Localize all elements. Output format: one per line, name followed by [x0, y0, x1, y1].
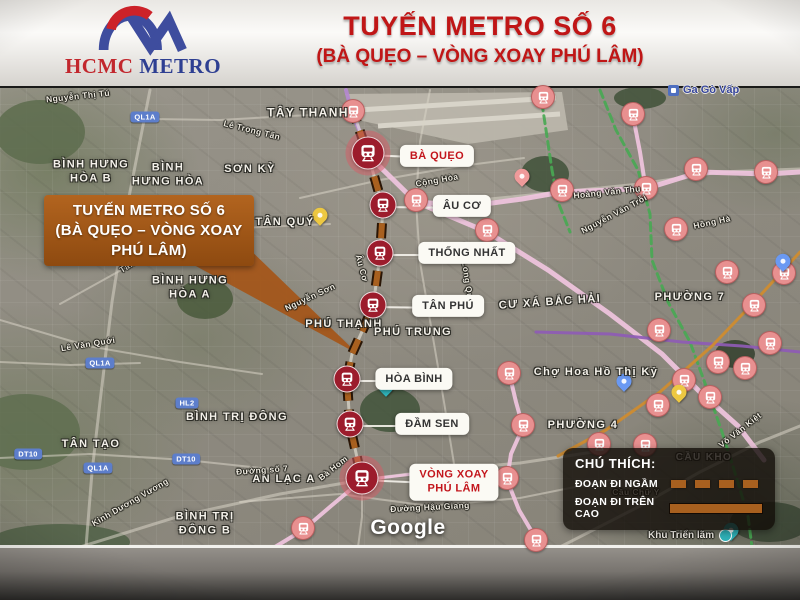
metro-station-icon [334, 366, 361, 393]
context-station-icon [698, 385, 722, 409]
context-station-icon [495, 466, 519, 490]
context-station-icon [706, 350, 730, 374]
context-station-icon [497, 361, 521, 385]
road-badge: DT10 [14, 449, 42, 460]
train-icon [358, 143, 379, 164]
legend-item-label: ĐOẠN ĐI TRÊN CAO [575, 496, 669, 520]
context-station-icon [404, 188, 428, 212]
train-icon [372, 245, 389, 262]
area-label: PHƯỜNG 7 [655, 291, 726, 305]
train-icon [502, 366, 517, 381]
train-icon [516, 418, 531, 433]
area-label: TÂN QUÝ [255, 216, 314, 230]
train-icon [365, 297, 382, 314]
context-station-icon [664, 217, 688, 241]
road-label: Võ Văn Kiệt [717, 410, 764, 450]
legend-box: CHÚ THÍCH: ĐOẠN ĐI NGẦMĐOẠN ĐI TRÊN CAO [563, 448, 775, 530]
train-icon [339, 371, 356, 388]
khu-trien-lam-label: Khu Triển lãm [648, 530, 714, 541]
legend-rows: ĐOẠN ĐI NGẦMĐOẠN ĐI TRÊN CAO [575, 478, 763, 520]
metro-station-icon [367, 240, 394, 267]
road-label: Đường Hậu Giang [390, 500, 470, 514]
context-station-icon [621, 102, 645, 126]
train-icon [409, 193, 424, 208]
area-label: BÌNH TRỊ ĐÔNG [186, 411, 288, 425]
station-label: THỐNG NHẤT [418, 242, 515, 264]
area-label: PHÚ THẠNH [305, 318, 382, 332]
context-station-icon [742, 293, 766, 317]
metro-station-icon [360, 292, 387, 319]
metro-station-icon [346, 462, 379, 495]
train-icon [626, 107, 641, 122]
area-label: SƠN KỲ [224, 163, 275, 177]
area-label: AN LẠC A [252, 473, 315, 487]
context-station-icon [511, 413, 535, 437]
map-pin [511, 166, 532, 187]
exhibit-poi-icon [719, 529, 732, 542]
metro-station-icon [337, 411, 364, 438]
train-station-poi-icon [668, 85, 679, 96]
train-icon [759, 165, 774, 180]
ga-go-vap-label: Ga Gò Vấp [683, 84, 739, 96]
area-label: BÌNH TRỊ ĐÔNG B [176, 510, 235, 538]
context-station-icon [647, 318, 671, 342]
area-label: BÌNH HƯNG HÒA A [152, 274, 228, 302]
area-label: Chợ Hoa Hồ Thị Kỷ [534, 366, 659, 380]
legend-swatch-solid [669, 503, 763, 514]
context-station-icon [684, 157, 708, 181]
train-icon [296, 521, 311, 536]
khu-trien-lam-poi: Khu Triển lãm [648, 529, 732, 542]
road-label: Nguyễn Văn Trỗi [579, 192, 648, 235]
area-label: BÌNH HƯNG HÒA [132, 161, 204, 189]
context-station-icon [531, 85, 555, 109]
train-icon [536, 90, 551, 105]
train-icon [500, 471, 515, 486]
google-watermark: Google [358, 516, 458, 540]
station-label: ĐẦM SEN [395, 413, 469, 435]
station-label: BÀ QUẸO [400, 145, 474, 167]
area-label: PHÚ TRUNG [374, 326, 452, 340]
train-icon [738, 361, 753, 376]
legend-row: ĐOẠN ĐI NGẦM [575, 478, 763, 490]
context-station-icon [550, 178, 574, 202]
legend-title: CHÚ THÍCH: [575, 456, 763, 471]
train-icon [555, 183, 570, 198]
train-icon [342, 416, 359, 433]
context-station-icon [733, 356, 757, 380]
map-overlays: TÂY THANHSƠN KỲBÌNH HƯNG HÒA BBÌNH HƯNG … [0, 0, 800, 600]
context-station-icon [758, 331, 782, 355]
callout-line-3: PHÚ LÂM) [46, 241, 252, 261]
metro-station-icon [370, 192, 397, 219]
road-label: Cộng Hòa [415, 171, 459, 188]
callout-line-2: (BÀ QUẸO – VÒNG XOAY [46, 221, 252, 241]
slide: HCMC METRO TUYẾN METRO SỐ 6 (BÀ QUẸO – V… [0, 0, 800, 600]
road-label: Nguyễn Thị Tú [46, 88, 111, 105]
area-label: BÌNH HƯNG HÒA B [53, 158, 129, 186]
train-icon [669, 222, 684, 237]
station-label: HÒA BÌNH [375, 368, 452, 390]
road-badge: DT10 [172, 454, 200, 465]
train-icon [651, 398, 666, 413]
context-station-icon [291, 516, 315, 540]
legend-swatch-dashed [671, 480, 763, 488]
train-icon [763, 336, 778, 351]
road-label: Nguyễn Sơn [283, 281, 337, 313]
area-label: TÂY THANH [267, 106, 349, 121]
area-label: TÂN TẠO [62, 438, 121, 452]
context-station-icon [754, 160, 778, 184]
station-label: VÒNG XOAY PHÚ LÂM [409, 464, 498, 501]
station-label: TÂN PHÚ [412, 295, 484, 317]
train-icon [689, 162, 704, 177]
road-label: Hồng Hà [692, 213, 731, 231]
area-label: CƯ XÁ BẮC HẢI [498, 293, 601, 314]
road-badge: QL1A [83, 463, 112, 474]
train-icon [652, 323, 667, 338]
train-icon [529, 533, 544, 548]
route-callout: TUYẾN METRO SỐ 6 (BÀ QUẸO – VÒNG XOAY PH… [44, 195, 254, 266]
train-icon [480, 223, 495, 238]
ga-go-vap-poi: Ga Gò Vấp [668, 84, 739, 96]
train-icon [747, 298, 762, 313]
road-label: Lê Trọng Tấn [223, 118, 282, 142]
context-station-icon [475, 218, 499, 242]
train-icon [375, 197, 392, 214]
train-icon [720, 265, 735, 280]
road-badge: HL2 [175, 398, 198, 409]
callout-line-1: TUYẾN METRO SỐ 6 [46, 201, 252, 221]
area-label: PHƯỜNG 4 [548, 419, 619, 433]
train-icon [711, 355, 726, 370]
station-label: ÂU CƠ [433, 195, 491, 217]
road-badge: QL1A [85, 358, 114, 369]
context-station-icon [715, 260, 739, 284]
legend-item-label: ĐOẠN ĐI NGẦM [575, 478, 658, 490]
context-station-icon [646, 393, 670, 417]
metro-station-icon [352, 137, 385, 170]
context-station-icon [524, 528, 548, 552]
legend-row: ĐOẠN ĐI TRÊN CAO [575, 496, 763, 520]
train-icon [352, 468, 373, 489]
road-badge: QL1A [130, 112, 159, 123]
road-label: Kinh Dương Vương [90, 476, 170, 528]
train-icon [703, 390, 718, 405]
road-label: Lê Văn Quới [60, 335, 116, 353]
